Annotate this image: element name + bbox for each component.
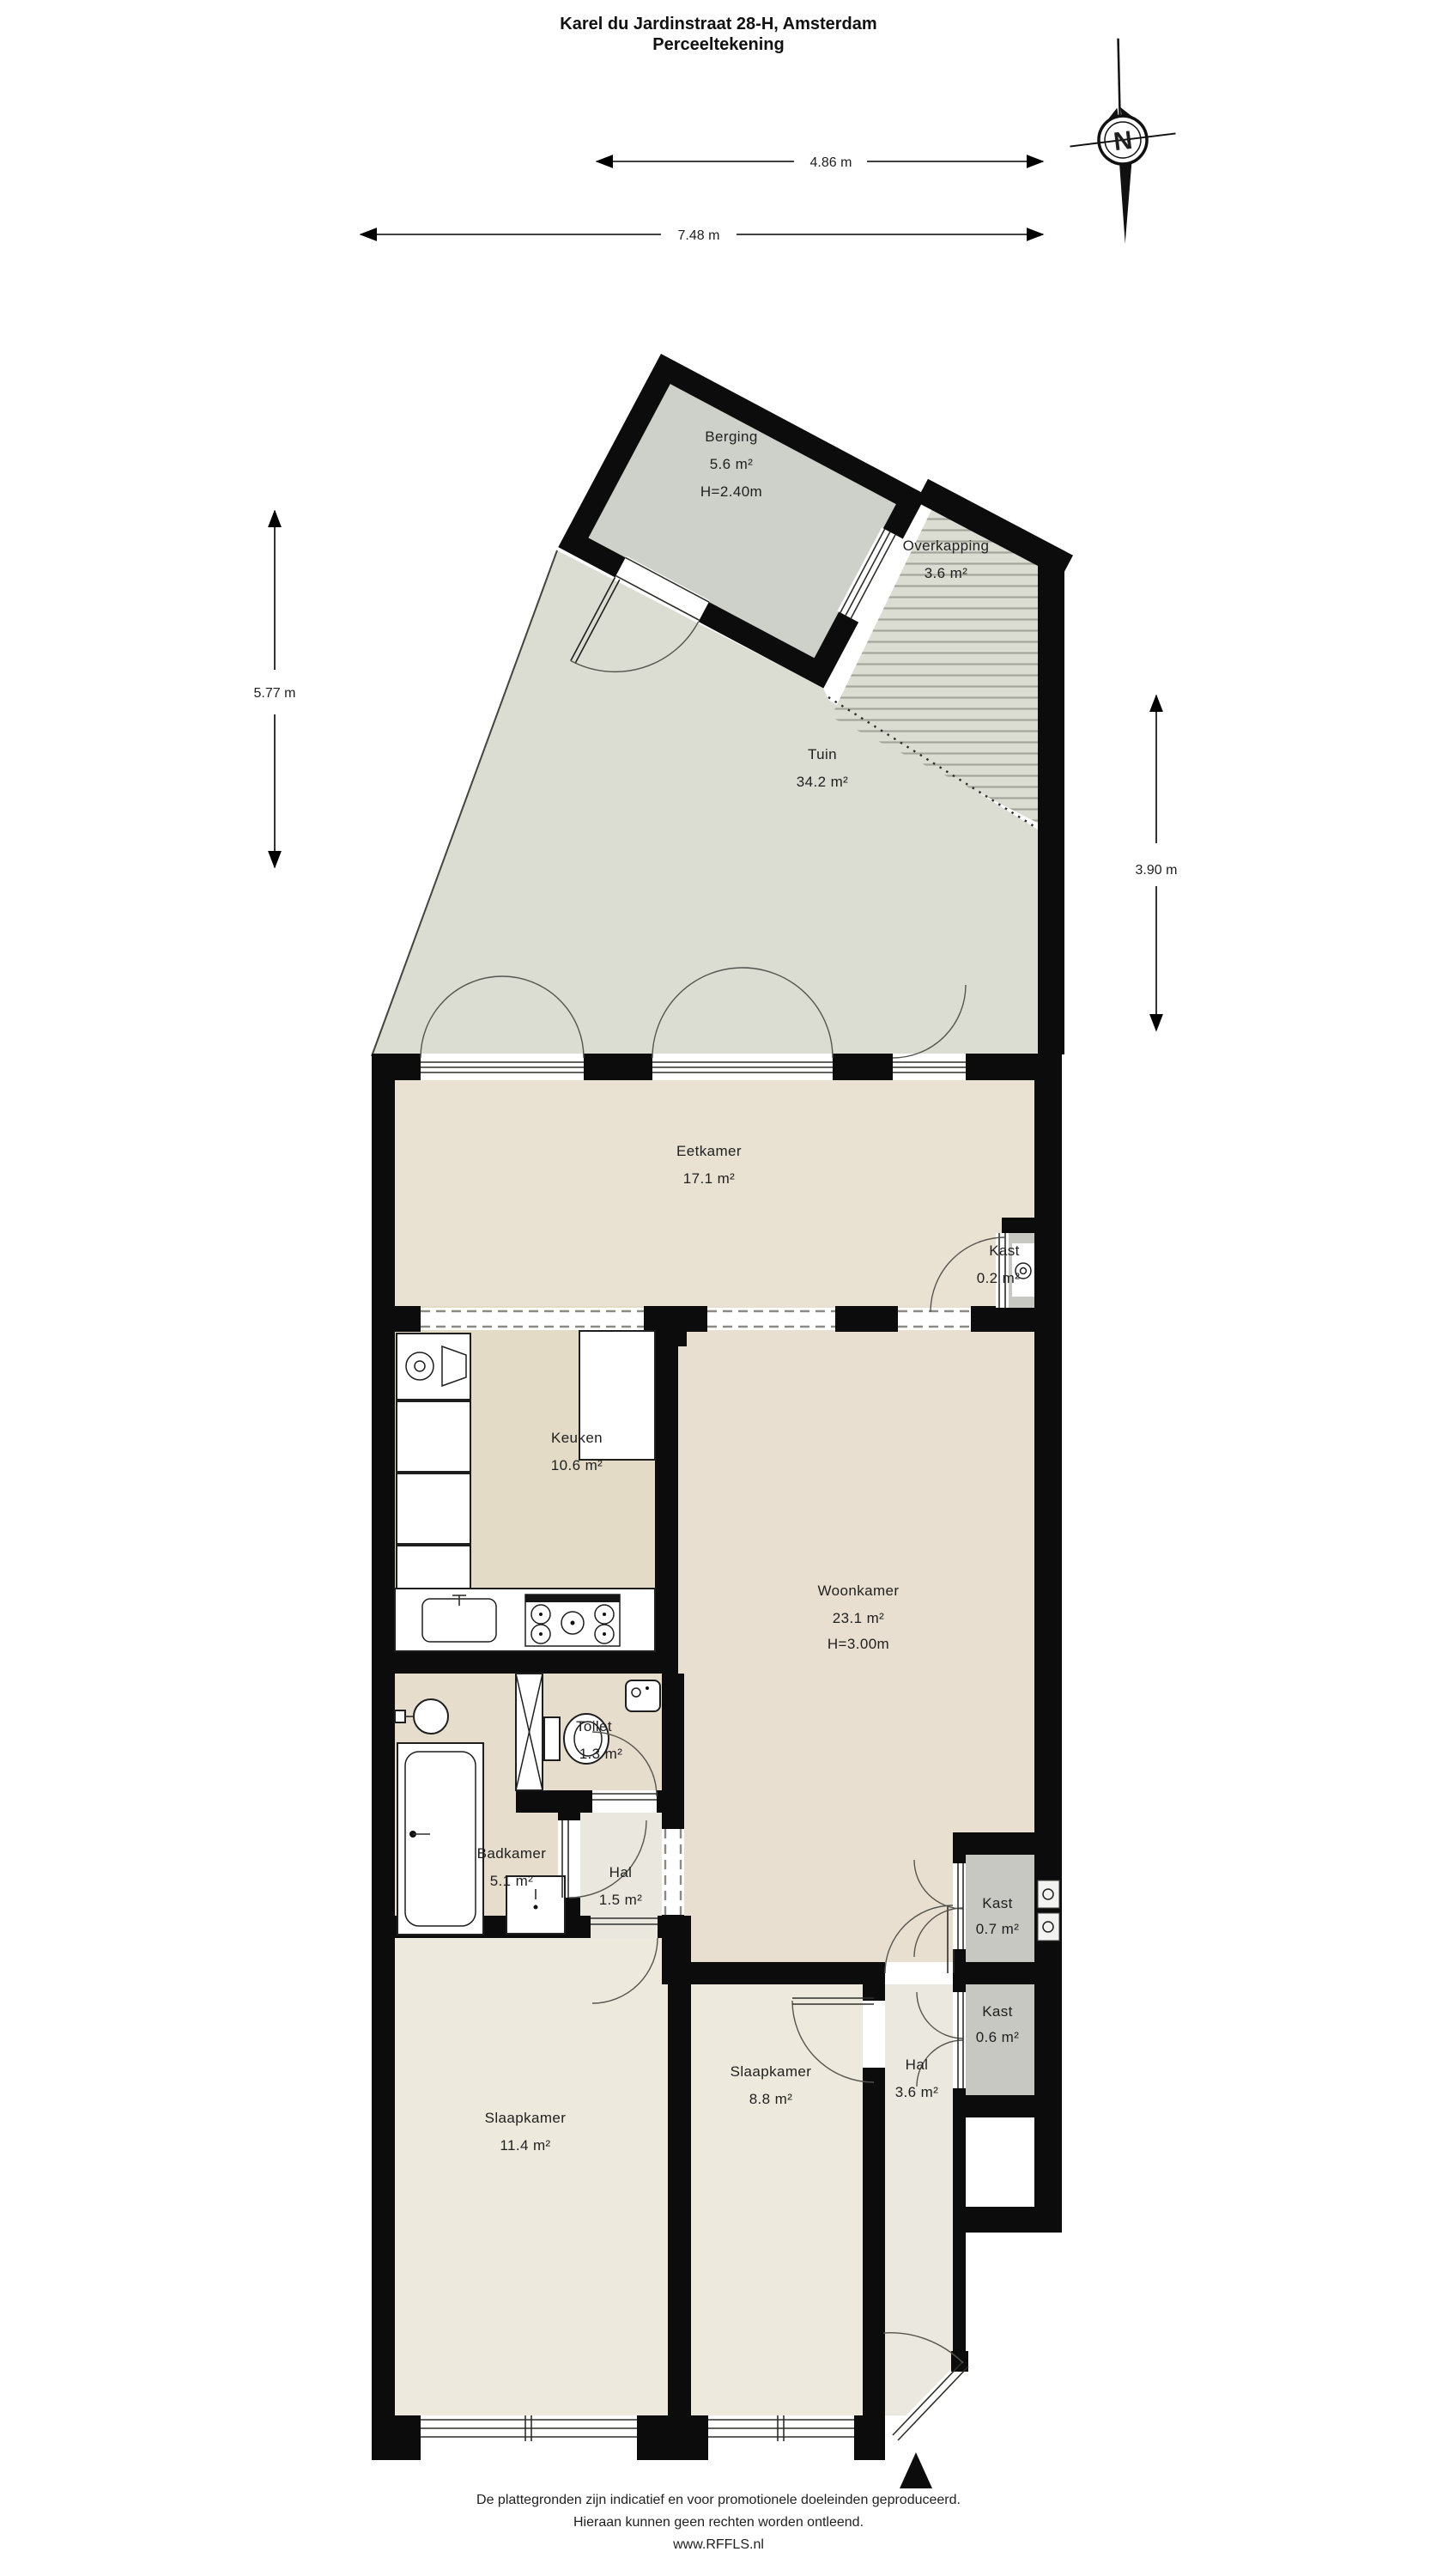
compass-rose: N [1058, 33, 1188, 248]
label-eetkamer-name: Eetkamer [676, 1143, 742, 1159]
label-keuken-area: 10.6 m² [551, 1457, 603, 1473]
label-badkamer-area: 5.1 m² [490, 1873, 534, 1889]
dim-left: 5.77 m [254, 686, 296, 701]
label-slaapkamer-groot-name: Slaapkamer [485, 2110, 567, 2126]
label-hal-klein-name: Hal [609, 1864, 633, 1880]
cabinet-icon [397, 1546, 470, 1589]
compass-north-label: N [1112, 126, 1134, 156]
label-tuin-area: 34.2 m² [797, 774, 848, 790]
label-hal-klein-area: 1.5 m² [599, 1892, 643, 1908]
label-keuken-name: Keuken [551, 1430, 603, 1446]
label-berging-area: 5.6 m² [710, 456, 754, 472]
footer-website: www.RFFLS.nl [672, 2537, 764, 2552]
label-hal-groot-name: Hal [906, 2057, 929, 2073]
label-overkapping-area: 3.6 m² [925, 565, 968, 581]
label-overkapping-name: Overkapping [903, 538, 990, 554]
cabinet-icon [397, 1401, 470, 1472]
cabinet-icon [397, 1473, 470, 1544]
room-floors [395, 1080, 1034, 2441]
label-kast02-name: Kast [989, 1242, 1020, 1259]
label-woonkamer-area: 23.1 m² [833, 1610, 884, 1626]
label-woonkamer-height: H=3.00m [828, 1636, 889, 1652]
label-toilet-name: Toilet [576, 1718, 612, 1735]
hal-groot-floor [885, 1984, 953, 2415]
compass-tail [1114, 155, 1143, 244]
label-badkamer-name: Badkamer [477, 1845, 547, 1862]
eetkamer-floor [395, 1080, 1034, 1306]
dim-right: 3.90 m [1136, 863, 1178, 878]
label-hal-groot-area: 3.6 m² [895, 2084, 939, 2100]
floorplan-page: 4.86 m 7.48 m 5.77 m 3.90 m N Berging 5.… [0, 0, 1449, 2576]
bathtub-icon [397, 1743, 483, 1935]
basin-icon [414, 1699, 448, 1734]
label-slaapkamer-groot-area: 11.4 m² [500, 2137, 550, 2154]
label-toilet-area: 1.3 m² [579, 1746, 623, 1762]
label-eetkamer-area: 17.1 m² [683, 1170, 735, 1187]
label-slaapkamer-klein-name: Slaapkamer [731, 2063, 812, 2080]
label-slaapkamer-klein-area: 8.8 m² [749, 2091, 793, 2107]
page-title-line1: Karel du Jardinstraat 28-H, Amsterdam [560, 15, 876, 33]
duct-shaft [516, 1674, 543, 1790]
page-title-line2: Perceeltekening [652, 35, 784, 54]
label-kast07-name: Kast [982, 1895, 1013, 1911]
label-kast07-area: 0.7 m² [976, 1921, 1020, 1937]
slaapkamer-groot-floor [395, 1938, 668, 2415]
label-berging-name: Berging [705, 428, 757, 445]
slaapkamer-klein-floor [691, 1984, 863, 2415]
floorplan-canvas: 4.86 m 7.48 m 5.77 m 3.90 m N Berging 5.… [0, 0, 1449, 2576]
label-kast06-name: Kast [982, 2003, 1013, 2020]
label-kast02-area: 0.2 m² [977, 1270, 1021, 1286]
label-kast06-area: 0.6 m² [976, 2029, 1020, 2045]
label-berging-height: H=2.40m [700, 483, 762, 500]
label-woonkamer-name: Woonkamer [818, 1583, 900, 1599]
dim-top-inner: 4.86 m [810, 155, 852, 170]
dim-top-outer: 7.48 m [678, 228, 720, 243]
label-tuin-name: Tuin [808, 746, 837, 762]
garden-wall-right [1038, 556, 1064, 1054]
footer-disclaimer-line2: Hieraan kunnen geen rechten worden ontle… [573, 2515, 864, 2530]
corner-sink-icon [626, 1680, 660, 1711]
entrance-marker-triangle [900, 2452, 932, 2488]
footer-disclaimer-line1: De plattegronden zijn indicatief en voor… [476, 2493, 961, 2507]
